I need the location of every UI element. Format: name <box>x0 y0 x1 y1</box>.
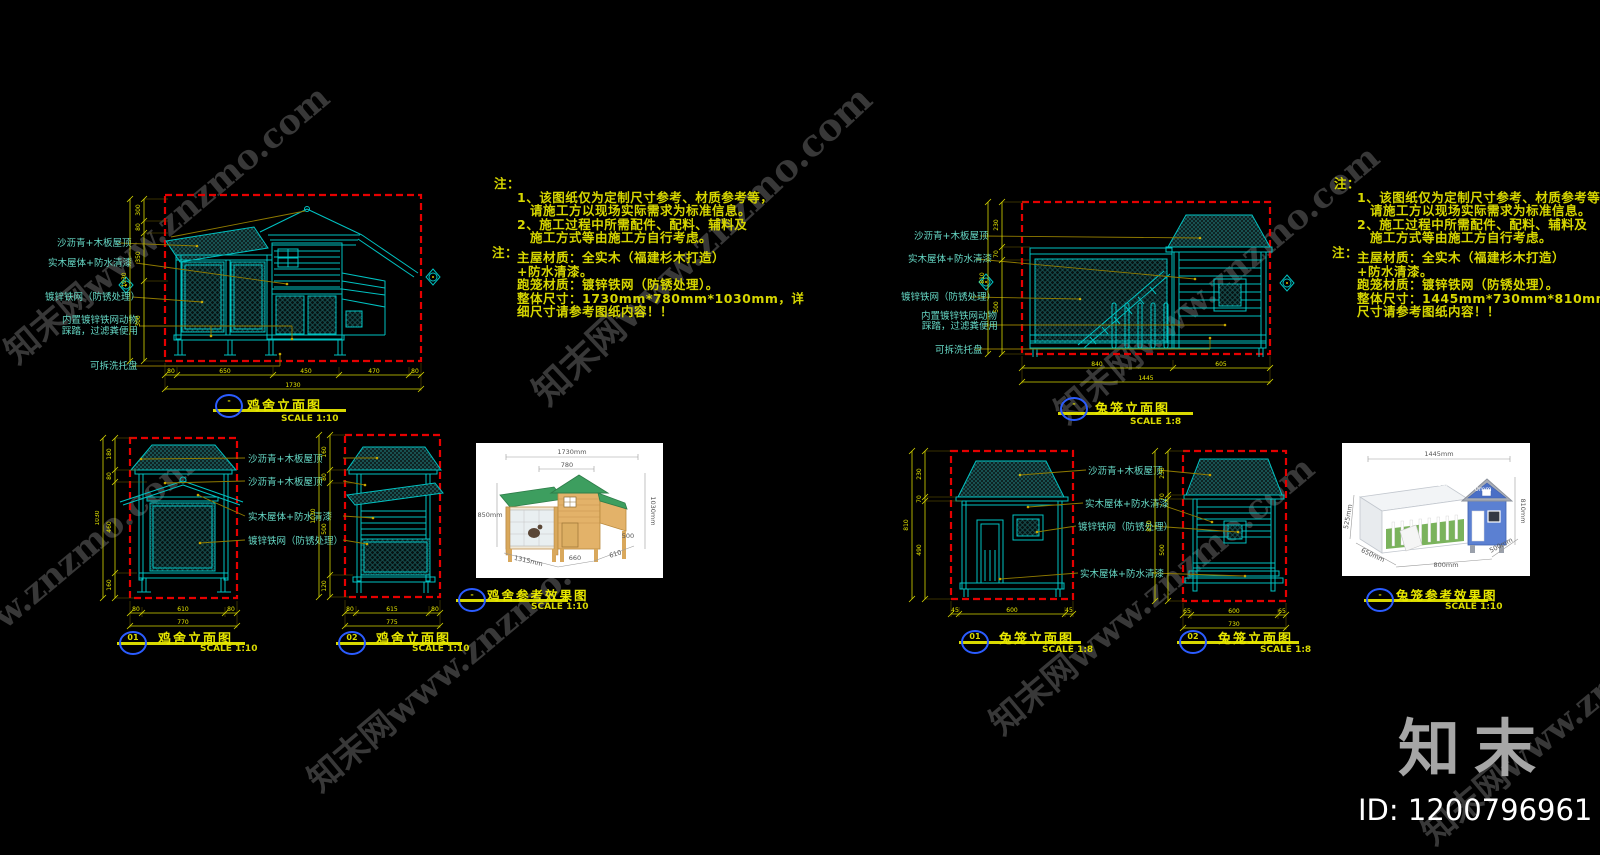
view-ref: 01 <box>969 632 980 641</box>
label-roof: 沙沥青+木板屋顶 <box>914 230 989 242</box>
view-ref: - <box>1378 590 1381 599</box>
note-line: 施工方式等由施工方自行考虑。 <box>1370 227 1552 246</box>
drawing-title: 鸡舍立面图 <box>247 395 322 414</box>
dim: 70 <box>993 250 1000 258</box>
coop-side-elevations-drawing: 沙沥青+木板屋顶 沙沥青+木板屋顶 实木屋体+防水清漆 镀锌铁网（防锈处理） 1… <box>95 425 455 660</box>
dim: 500 <box>1159 544 1166 556</box>
material-labels: 沙沥青+木板屋顶 实木屋体+防水清漆 镀锌铁网（防锈处理） 内置镀锌铁网动物 踩… <box>901 230 998 356</box>
view-reference-bubble: - <box>1366 588 1394 612</box>
dim: 80 <box>167 368 175 375</box>
label-wood: 实木屋体+防水清漆 <box>48 257 132 269</box>
znzmo-logo: 知末 <box>1398 698 1550 788</box>
label-wood: 实木屋体+防水清漆 <box>248 511 332 523</box>
rabbit-elevation-drawing: 沙沥青+木板屋顶 实木屋体+防水清漆 镀锌铁网（防锈处理） 内置镀锌铁网动物 踩… <box>880 185 1320 430</box>
dim: 80 <box>135 223 142 231</box>
label-inner-2: 踩踏，过滤粪便用 <box>922 320 998 332</box>
label-wood: 实木屋体+防水清漆 <box>908 253 992 265</box>
dim: 80 <box>132 606 140 613</box>
dim: 850mm <box>477 511 502 519</box>
note-line: 细尺寸请参考图纸内容！！ <box>517 301 673 320</box>
label-wood: 实木屋体+防水清漆 <box>1085 498 1169 510</box>
label-roof: 沙沥青+木板屋顶 <box>248 453 323 465</box>
coop-side-structure-02 <box>347 447 443 593</box>
dim: 160 <box>321 446 328 458</box>
material-labels: 沙沥青+木板屋顶 实木屋体+防水清漆 镀锌铁网（防锈处理） 内置镀锌铁网动物 踩… <box>45 237 140 372</box>
dim: 1445mm <box>1424 450 1453 458</box>
dim: 810 <box>903 519 910 531</box>
dim: 470 <box>368 368 380 375</box>
dim: 80 <box>431 606 439 613</box>
dim: 500 <box>321 523 328 535</box>
view-ref: 02 <box>346 633 357 642</box>
dim: 730mm <box>1433 480 1458 488</box>
dim: 810 <box>979 272 986 284</box>
dim: 1030mm <box>649 496 657 525</box>
dim: 1315mm <box>513 554 543 568</box>
dim: 65 <box>1183 608 1191 615</box>
dim: 605 <box>1215 361 1227 368</box>
dim: 65 <box>1278 608 1286 615</box>
dim: 840 <box>1091 361 1103 368</box>
note-line: 施工方式等由施工方自行考虑。 <box>530 227 712 246</box>
coop-render <box>500 475 627 562</box>
dim: 1030 <box>95 510 101 525</box>
label-inner-2: 踩踏，过滤粪便用 <box>62 325 138 337</box>
coop-photo-illustration: 1730mm 780 850mm 1030mm 500 1315mm 660 6… <box>476 443 663 578</box>
label-roof: 沙沥青+木板屋顶 <box>1088 465 1163 477</box>
dim-total: 770 <box>177 619 189 626</box>
rabbit-reference-photo: 1445mm 730mm 470mm 810mm 525mm 650mm 800… <box>1342 443 1530 576</box>
label-mesh: 镀锌铁网（防锈处理） <box>45 291 140 303</box>
coop-reference-photo: 1730mm 780 850mm 1030mm 500 1315mm 660 6… <box>476 443 663 578</box>
dim: 610 <box>608 548 622 559</box>
dim: 300 <box>135 204 142 216</box>
label-wood: 实木屋体+防水清漆 <box>1080 568 1164 580</box>
drawing-scale: SCALE 1:8 <box>1130 417 1181 427</box>
dim: 450 <box>300 368 312 375</box>
dim: 460 <box>106 521 113 533</box>
cad-sheet: 知末网www.znzmo.com 知末网www.znzmo.com 知末网www… <box>0 0 1600 855</box>
dim: 80 <box>411 368 419 375</box>
dim: 70 <box>1159 493 1166 501</box>
label-mesh: 镀锌铁网（防锈处理） <box>248 535 343 547</box>
dim: 1730mm <box>557 448 586 456</box>
view-ref: - <box>470 590 473 599</box>
rabbit-front-structure-01 <box>956 461 1068 597</box>
drawing-scale: SCALE 1:10 <box>281 414 338 424</box>
dim: 610 <box>177 606 189 613</box>
dim: 70 <box>916 495 923 503</box>
view-ref: 01 <box>127 633 138 642</box>
view-reference-bubble: - <box>1060 397 1088 421</box>
dim: 45 <box>1065 607 1073 614</box>
dim: 600 <box>1228 608 1240 615</box>
note-heading: 注： <box>492 242 518 261</box>
label-tray: 可拆洗托盘 <box>90 360 138 372</box>
rabbit-side-elevations-drawing: 沙沥青+木板屋顶 实木屋体+防水清漆 镀锌铁网（防锈处理） 实木屋体+防水清漆 … <box>900 425 1300 660</box>
dim: 1030 <box>310 508 317 523</box>
dim: 300 <box>135 315 142 327</box>
dim: 600 <box>1006 607 1018 614</box>
material-labels: 沙沥青+木板屋顶 沙沥青+木板屋顶 实木屋体+防水清漆 镀锌铁网（防锈处理） <box>248 453 343 547</box>
dim: 810 <box>1146 520 1153 532</box>
drawing-scale: SCALE 1:10 <box>200 644 257 654</box>
dim: 810mm <box>1519 498 1527 523</box>
drawing-scale: SCALE 1:8 <box>1260 645 1311 655</box>
dim: 120 <box>321 580 328 592</box>
elevation-marker-icon <box>1280 275 1294 291</box>
dim-total: 1445 <box>1138 375 1153 382</box>
dim: 660 <box>569 554 581 562</box>
view-reference-bubble: - <box>215 394 243 418</box>
dim: 780 <box>561 461 573 469</box>
dim: 470mm <box>1466 485 1491 493</box>
view-ref: - <box>227 396 230 405</box>
label-roof: 沙沥青+木板屋顶 <box>57 237 132 249</box>
note-heading: 注： <box>1332 242 1358 261</box>
view-reference-bubble: 02 <box>338 631 366 655</box>
dim: 1030 <box>121 272 128 287</box>
dim: 490 <box>916 544 923 556</box>
dim: 80 <box>321 473 328 481</box>
dim-total: 730 <box>1228 621 1240 628</box>
drawing-scale: SCALE 1:10 <box>412 644 469 654</box>
rabbit-photo-illustration: 1445mm 730mm 470mm 810mm 525mm 650mm 800… <box>1342 443 1530 576</box>
dim: 500 <box>993 301 1000 313</box>
view-reference-bubble: - <box>458 588 486 612</box>
note-line: 尺寸请参考图纸内容！！ <box>1357 301 1500 320</box>
label-mesh: 镀锌铁网（防锈处理） <box>1078 521 1173 533</box>
drawing-scale: SCALE 1:10 <box>531 602 588 612</box>
rabbit-structure <box>1030 215 1272 357</box>
rabbit-side-structure-02 <box>1184 459 1284 591</box>
asset-id: ID: 1200796961 <box>1358 793 1592 827</box>
drawing-scale: SCALE 1:8 <box>1042 645 1093 655</box>
dim: 800mm <box>1433 561 1458 569</box>
dim-total: 775 <box>386 619 398 626</box>
label-inner-1: 内置镀锌铁网动物 <box>62 314 139 326</box>
coop-front-elevation-drawing: 沙沥青+木板屋顶 实木屋体+防水清漆 镀锌铁网（防锈处理） 内置镀锌铁网动物 踩… <box>40 185 460 430</box>
dim-total: 1730 <box>285 382 300 389</box>
dim: 230 <box>993 219 1000 231</box>
dim: 615 <box>386 606 398 613</box>
view-reference-bubble: 01 <box>961 630 989 654</box>
dim: 80 <box>106 472 113 480</box>
dim: 230 <box>1159 467 1166 479</box>
drawing-title: 兔笼立面图 <box>1095 398 1170 417</box>
dim: 350 <box>135 251 142 263</box>
view-ref: 02 <box>1187 632 1198 641</box>
material-labels: 沙沥青+木板屋顶 实木屋体+防水清漆 镀锌铁网（防锈处理） 实木屋体+防水清漆 <box>1078 465 1173 580</box>
coop-side-structure-01 <box>120 445 243 592</box>
view-reference-bubble: 01 <box>119 631 147 655</box>
dim: 80 <box>227 606 235 613</box>
drawing-scale: SCALE 1:10 <box>1445 602 1502 612</box>
label-tray: 可拆洗托盘 <box>935 344 983 356</box>
dim: 500 <box>622 532 634 540</box>
elevation-marker-icon <box>426 269 440 285</box>
view-reference-bubble: 02 <box>1179 630 1207 654</box>
label-roof: 沙沥青+木板屋顶 <box>248 476 323 488</box>
dim: 80 <box>346 606 354 613</box>
view-ref: - <box>1072 399 1075 408</box>
dim: 180 <box>106 448 113 460</box>
dim: 160 <box>106 579 113 591</box>
label-mesh: 镀锌铁网（防锈处理） <box>901 291 996 303</box>
dim: 650 <box>219 368 231 375</box>
dim: 230 <box>916 468 923 480</box>
dim: 45 <box>951 607 959 614</box>
